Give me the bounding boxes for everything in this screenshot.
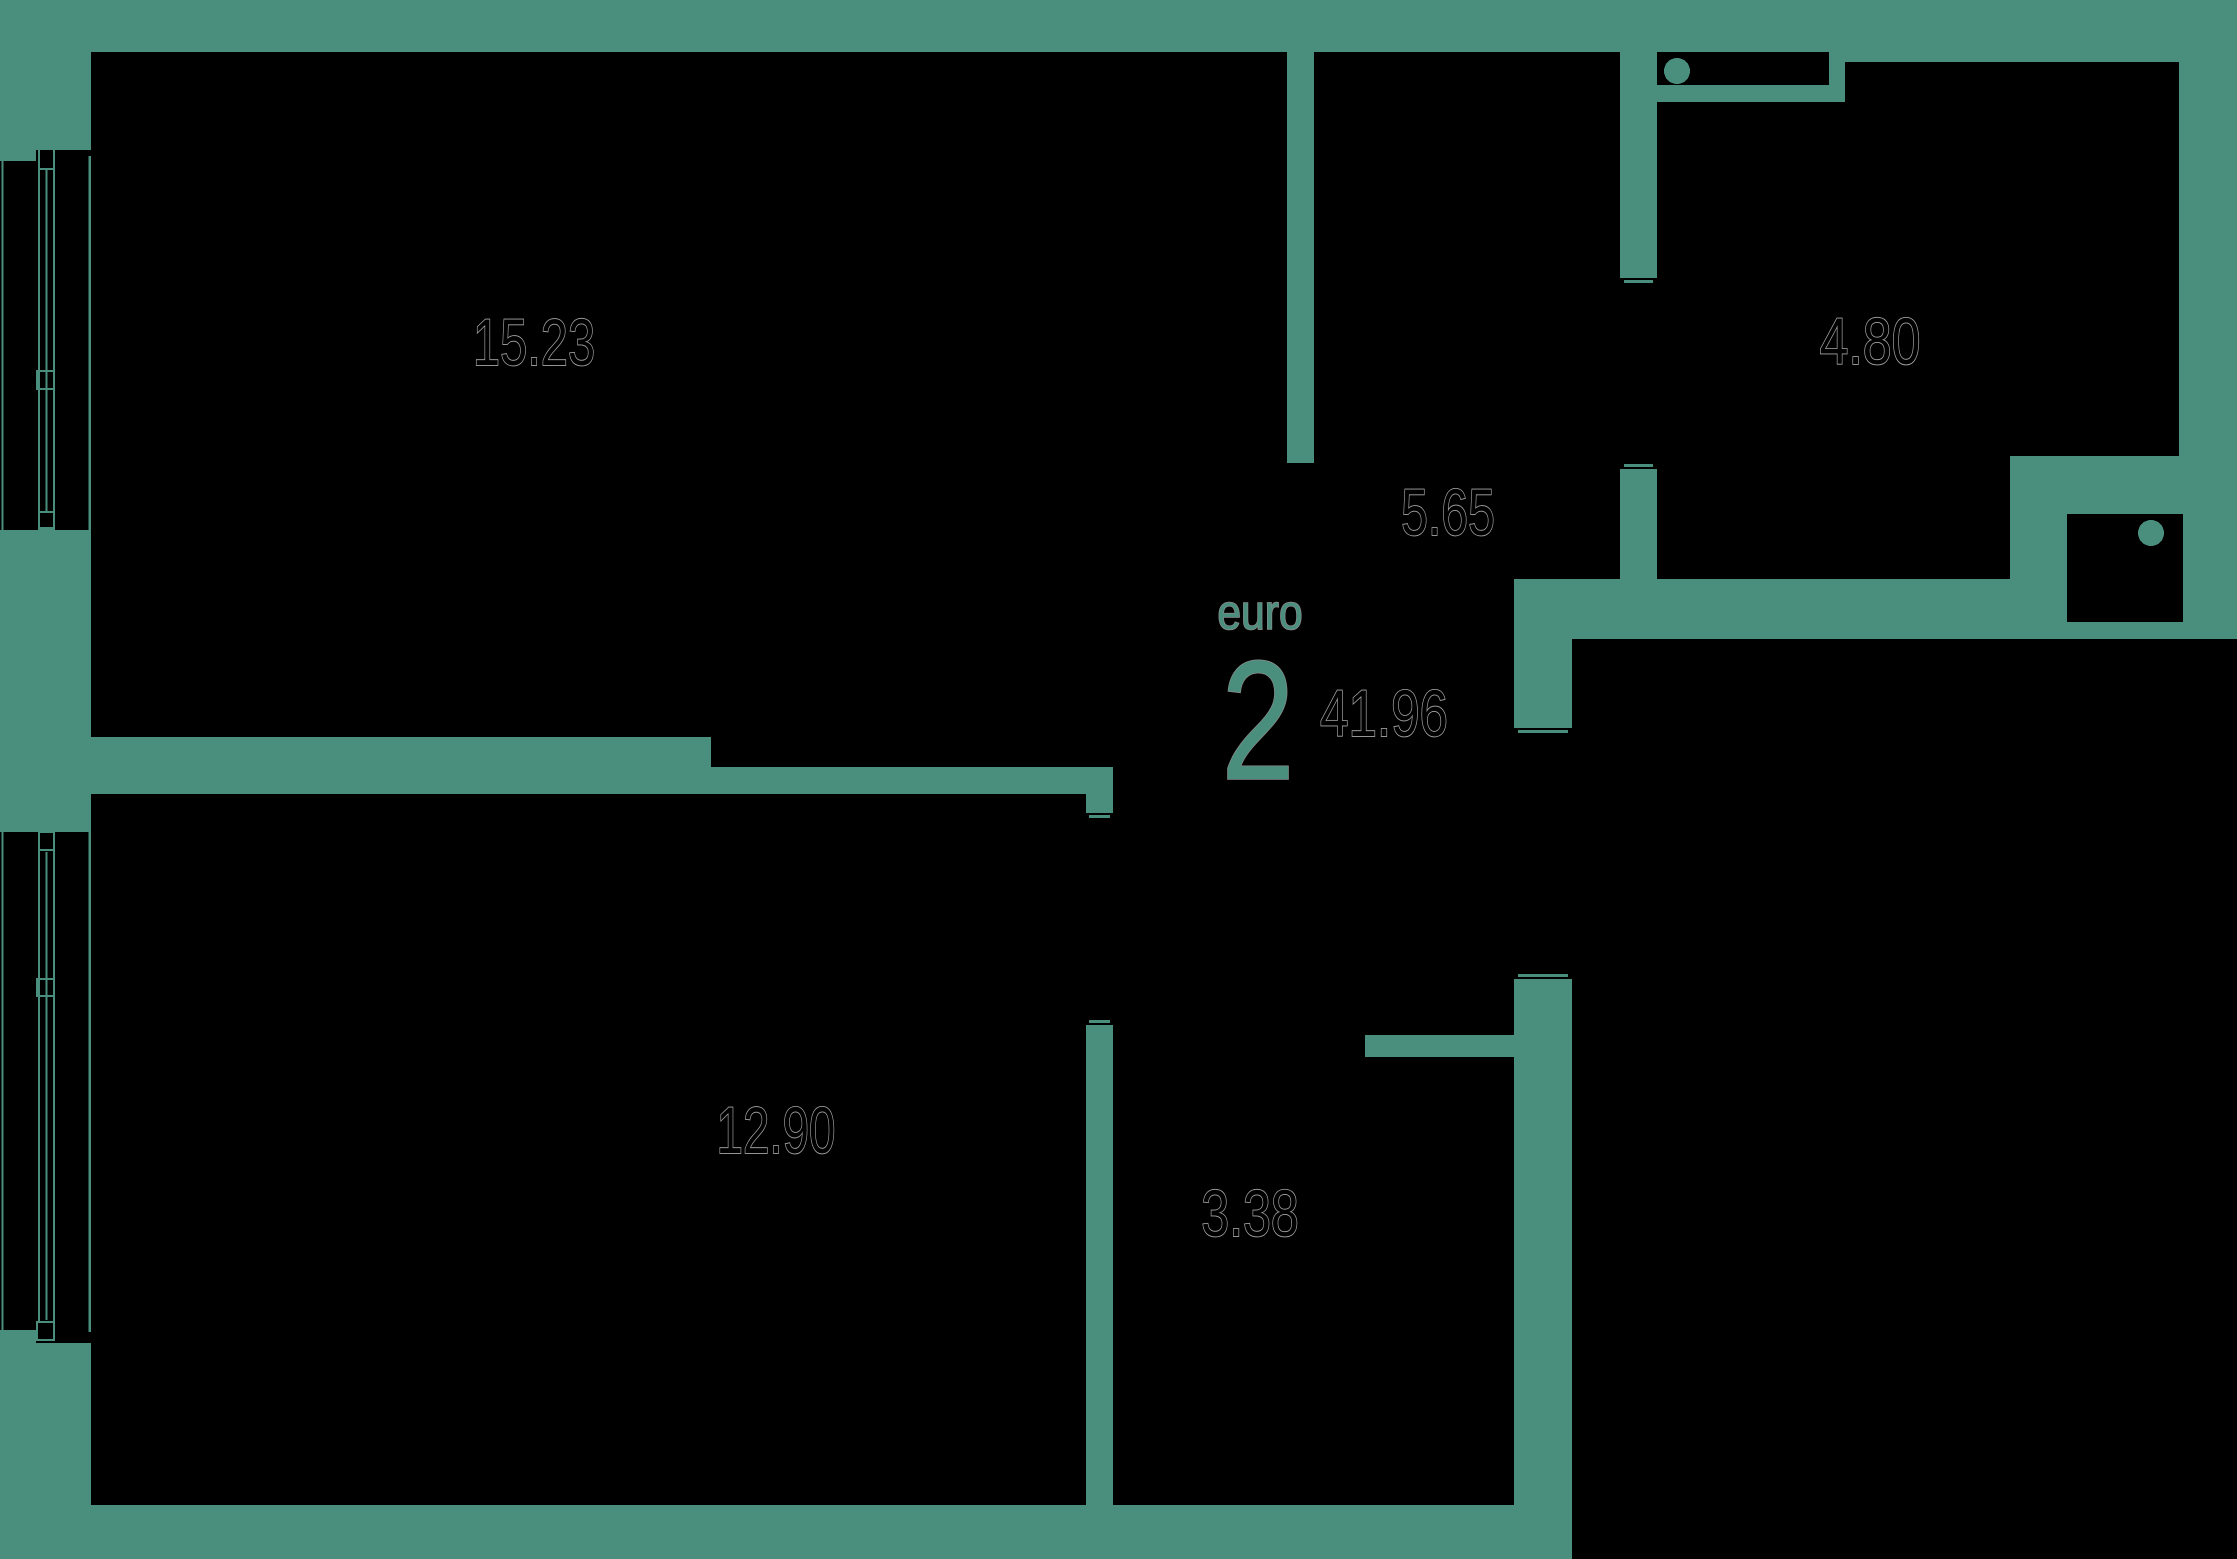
svg-text:5.65: 5.65: [1401, 477, 1495, 550]
svg-text:4.80: 4.80: [1820, 304, 1921, 378]
svg-text:12.90: 12.90: [717, 1094, 836, 1167]
svg-text:15.23: 15.23: [473, 306, 595, 380]
svg-text:41.96: 41.96: [1320, 677, 1448, 751]
svg-text:3.38: 3.38: [1201, 1177, 1299, 1250]
svg-text:2: 2: [1221, 626, 1295, 816]
